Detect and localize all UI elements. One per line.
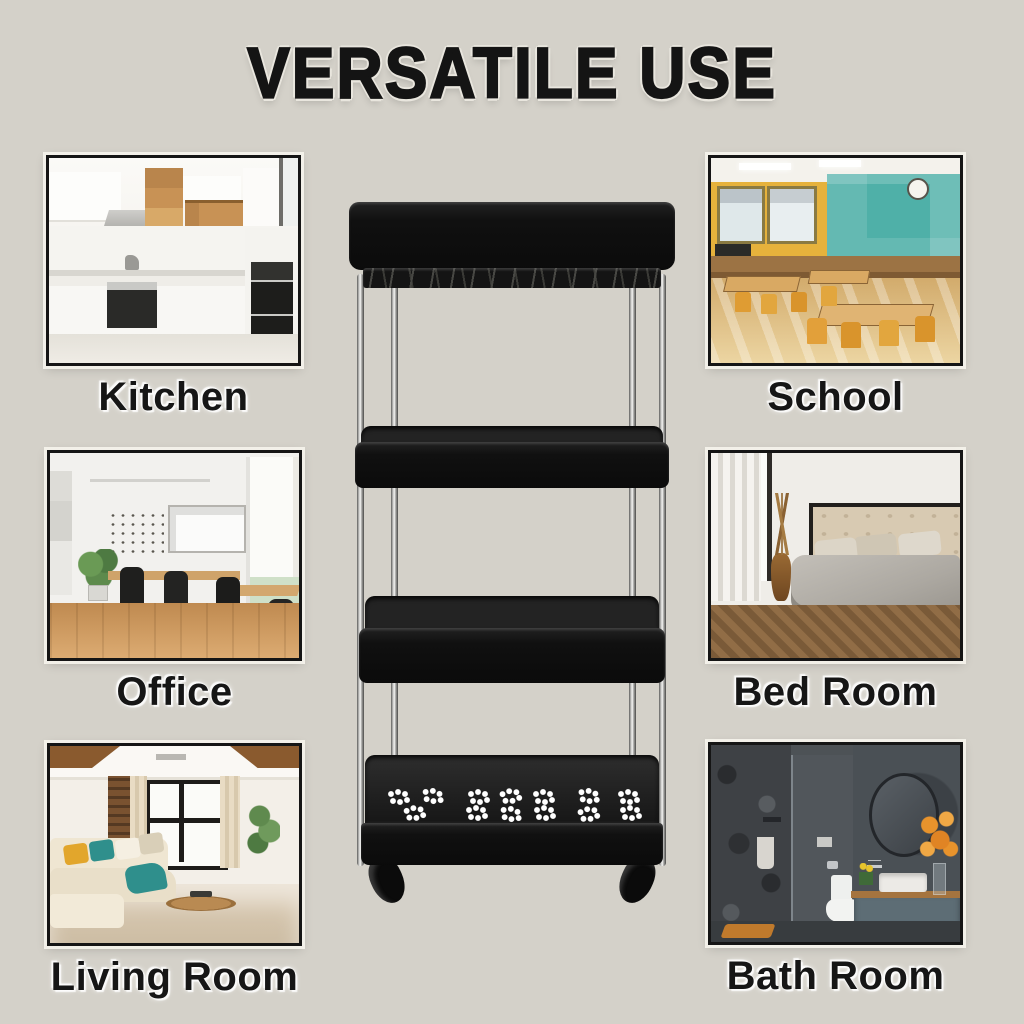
- school-ceiling-light-1: [739, 163, 791, 170]
- school-window-2: [767, 186, 817, 244]
- living-coffee-table: [166, 896, 236, 911]
- room-label-bath: Bath Room: [708, 954, 963, 999]
- room-card-school: School: [708, 155, 963, 420]
- school-chairs-front-row: [807, 318, 827, 344]
- room-card-kitchen: Kitchen: [46, 155, 301, 420]
- bath-yellow-flowers: [859, 863, 873, 885]
- school-table-mid: [808, 270, 870, 284]
- bedroom-curtain: [711, 453, 761, 601]
- paw-print-cutout: [465, 805, 489, 823]
- bedroom-herringbone: [711, 605, 960, 658]
- page-title-text: VERSATILE USE: [247, 32, 777, 115]
- kitchen-upper-cabinet-mid: [183, 176, 241, 200]
- room-card-bath: Bath Room: [708, 742, 963, 999]
- kitchen-kettle: [125, 255, 139, 270]
- bath-stone-shower-wall: [711, 745, 791, 942]
- bath-shower-shelf: [763, 817, 781, 822]
- page-title: VERSATILE USE: [0, 36, 1024, 122]
- bath-orange-mat: [720, 924, 775, 938]
- room-label-office: Office: [47, 670, 302, 715]
- office-ceiling-light: [90, 479, 210, 482]
- room-label-school: School: [708, 375, 963, 420]
- product-rolling-cart: [347, 198, 677, 920]
- bath-towel: [757, 837, 774, 869]
- office-plant: [78, 549, 120, 587]
- office-wall-decals: [108, 511, 164, 553]
- room-photo-bedroom: [708, 450, 963, 661]
- room-label-kitchen: Kitchen: [46, 375, 301, 420]
- office-desk-right: [216, 585, 301, 596]
- cart-tier-1-basket: [349, 202, 675, 270]
- bath-flush-plate: [817, 837, 832, 847]
- school-ceiling-light-2: [819, 160, 861, 167]
- living-sofa-chaise: [50, 894, 124, 928]
- office-plant-pot: [88, 585, 108, 601]
- cart-tier-2-basket: [355, 442, 669, 488]
- paw-print-cutout: [533, 805, 557, 823]
- kitchen-oven: [107, 282, 157, 328]
- room-photo-bath: [708, 742, 963, 945]
- living-ceiling-vent: [156, 754, 186, 760]
- school-clock: [907, 178, 929, 200]
- bath-vessel-sink: [879, 873, 927, 892]
- room-photo-school: [708, 155, 963, 366]
- cart-pole-left-front: [357, 274, 364, 866]
- paw-print-cutout: [387, 789, 411, 807]
- living-sofa-pillows: [63, 842, 90, 865]
- kitchen-floor: [49, 334, 298, 363]
- office-whiteboard: [168, 505, 246, 553]
- living-curtain-right: [220, 776, 240, 868]
- living-plant: [246, 798, 280, 858]
- office-floor-planks: [50, 603, 299, 658]
- room-photo-kitchen: [46, 155, 301, 366]
- kitchen-upper-cabinet-right: [243, 168, 279, 226]
- room-card-bedroom: Bed Room: [708, 450, 963, 715]
- office-shelf: [50, 471, 72, 595]
- school-window-1: [717, 186, 765, 244]
- room-photo-office: [47, 450, 302, 661]
- living-window-mullion-h: [146, 818, 220, 823]
- cart-tier-4-basket: [361, 823, 663, 865]
- bedroom-dried-flowers: [765, 493, 799, 555]
- room-card-office: Office: [47, 450, 302, 715]
- bath-toilet-tank: [831, 875, 852, 902]
- school-table-back: [723, 276, 801, 292]
- bath-tp-holder: [827, 861, 838, 869]
- room-card-living: Living Room: [47, 743, 302, 1000]
- kitchen-open-shelf-wide: [185, 200, 243, 226]
- cart-tier-4-floor: [365, 755, 659, 825]
- paw-print-cutout: [402, 804, 428, 824]
- kitchen-open-shelf-tall: [145, 168, 183, 228]
- living-table-decor: [190, 891, 212, 897]
- cart-tier-3-rim: [365, 596, 659, 632]
- bath-flower-vase: [933, 863, 946, 895]
- page-background: VERSATILE USE Kitchen: [0, 0, 1024, 1024]
- cart-pole-right-front: [659, 274, 666, 866]
- bath-orange-flowers: [917, 807, 959, 867]
- cart-tier-1-wire-mesh-shelf: [363, 268, 661, 288]
- paw-print-cutout: [619, 805, 643, 823]
- room-photo-living: [47, 743, 302, 946]
- school-chalkboard-wall: [827, 174, 960, 258]
- school-table-front: [816, 304, 934, 326]
- cart-tier-3-basket: [359, 628, 665, 683]
- school-chairs-back-row: [735, 292, 751, 312]
- bedroom-vase: [771, 553, 791, 601]
- room-label-living: Living Room: [47, 955, 302, 1000]
- room-label-bedroom: Bed Room: [708, 670, 963, 715]
